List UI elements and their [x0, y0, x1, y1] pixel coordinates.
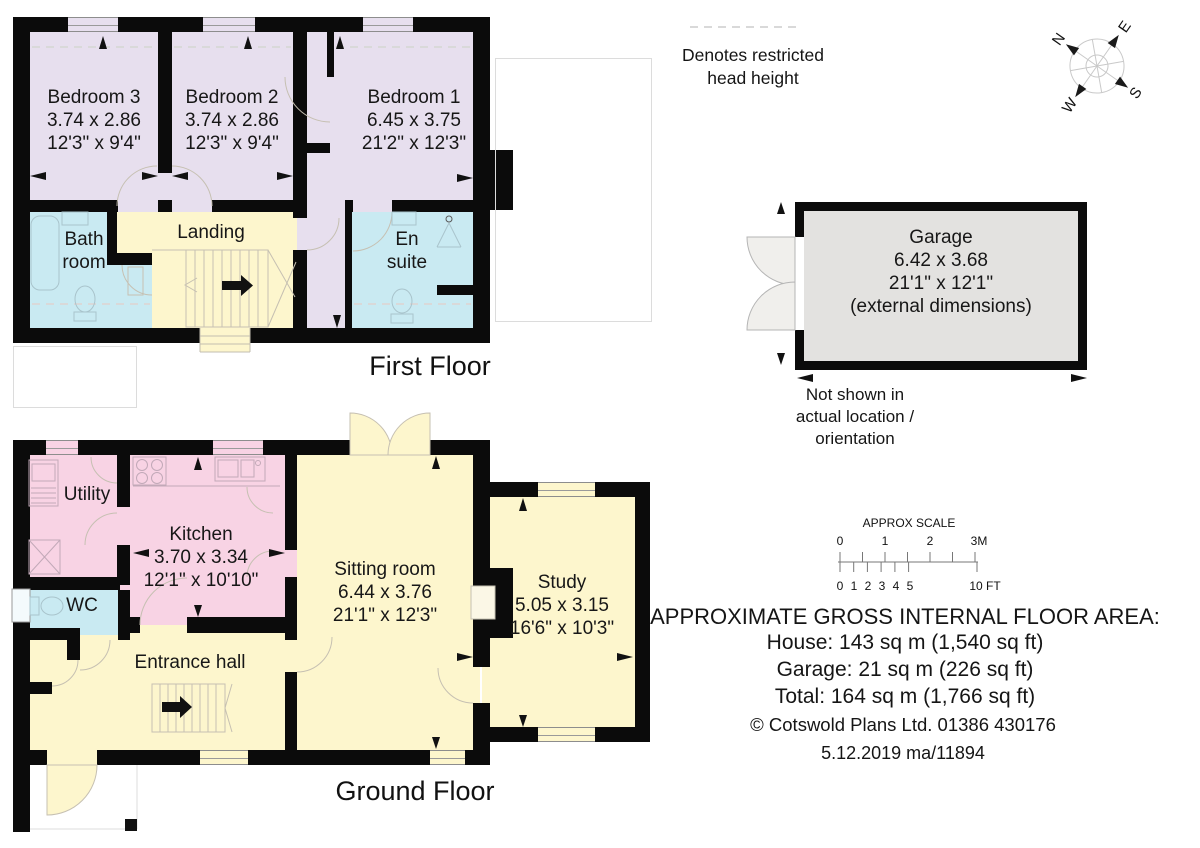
- room-fill-utility: [22, 448, 130, 585]
- window: [213, 440, 263, 455]
- window: [538, 482, 595, 497]
- door-gap: [350, 440, 430, 455]
- sitting-room-name: Sitting room: [333, 558, 437, 581]
- room-label-bedroom3: Bedroom 3 3.74 x 2.86 12'3" x 9'4": [47, 86, 141, 155]
- compass-rose: N E S W: [1020, 0, 1173, 143]
- wall: [67, 640, 80, 660]
- svg-text:10 FT: 10 FT: [969, 579, 1001, 593]
- wall: [187, 617, 297, 633]
- bedroom2-name: Bedroom 2: [185, 86, 279, 109]
- room-label-study: Study 5.05 x 3.15 16'6" x 10'3": [510, 571, 614, 640]
- room-label-landing: Landing: [177, 221, 245, 244]
- compass-s: S: [1126, 84, 1146, 102]
- floor-plan-page: N E S W APPROX SCALE 0 1 2: [0, 0, 1200, 848]
- garage-note: (external dimensions): [850, 295, 1032, 318]
- scale-meter-labels: 0 1 2 3M: [837, 534, 988, 548]
- wall: [250, 328, 490, 343]
- wall: [437, 285, 473, 295]
- bedroom3-name: Bedroom 3: [47, 86, 141, 109]
- kitchen-imperial: 12'1" x 10'10": [144, 569, 259, 592]
- kitchen-metric: 3.70 x 3.34: [144, 546, 259, 569]
- wall: [158, 200, 172, 212]
- wall: [392, 200, 473, 212]
- window: [430, 750, 465, 765]
- bedroom2-metric: 3.74 x 2.86: [185, 109, 279, 132]
- svg-text:0: 0: [837, 534, 844, 548]
- wall: [473, 17, 490, 343]
- window: [46, 440, 78, 455]
- room-fill-bathroom: [107, 260, 152, 333]
- bedroom1-metric: 6.45 x 3.75: [362, 109, 466, 132]
- bedroom1-name: Bedroom 1: [362, 86, 466, 109]
- wall: [30, 682, 52, 694]
- scale-feet-labels: 0 1 2 3 4 5 10 FT: [837, 579, 1002, 593]
- wall: [117, 455, 130, 507]
- svg-text:2: 2: [865, 579, 872, 593]
- wall: [293, 32, 307, 218]
- wall: [13, 328, 200, 343]
- wall: [30, 577, 120, 590]
- scale-bar: APPROX SCALE 0 1 2 3M 0 1 2 3: [837, 516, 1002, 593]
- ensuite-line1: En: [387, 228, 427, 251]
- legend-restricted-head-height: Denotes restricted head height: [682, 44, 824, 90]
- wall: [212, 200, 293, 212]
- bathroom-line2: room: [62, 251, 105, 274]
- garage-door-leaf: [747, 282, 795, 330]
- room-label-wc: WC: [66, 594, 98, 617]
- room-label-garage: Garage 6.42 x 3.68 21'1" x 12'1" (extern…: [850, 226, 1032, 318]
- wall: [158, 32, 172, 173]
- wall: [285, 672, 297, 750]
- study-metric: 5.05 x 3.15: [510, 594, 614, 617]
- window: [203, 17, 255, 32]
- wall: [293, 250, 307, 328]
- garage-caption-line3: orientation: [796, 428, 914, 450]
- room-label-kitchen: Kitchen 3.70 x 3.34 12'1" x 10'10": [144, 523, 259, 592]
- bedroom3-imperial: 12'3" x 9'4": [47, 132, 141, 155]
- wall: [285, 455, 297, 550]
- first-floor-title: First Floor: [369, 351, 491, 382]
- compass-n: N: [1049, 30, 1069, 49]
- wall: [13, 750, 47, 765]
- wall: [13, 765, 30, 832]
- areas-house: House: 143 sq m (1,540 sq ft): [767, 631, 1044, 655]
- date-reference: 5.12.2019 ma/11894: [821, 743, 985, 764]
- areas-total: Total: 164 sq m (1,766 sq ft): [775, 685, 1035, 709]
- room-fill-landing: [152, 258, 297, 333]
- svg-text:3: 3: [879, 579, 886, 593]
- wall: [130, 617, 140, 633]
- garage-metric: 6.42 x 3.68: [850, 249, 1032, 272]
- wall: [345, 200, 353, 212]
- copyright-line: © Cotswold Plans Ltd. 01386 430176: [750, 714, 1056, 736]
- wc-name: WC: [66, 594, 98, 617]
- ensuite-line2: suite: [387, 251, 427, 274]
- scale-title: APPROX SCALE: [863, 516, 956, 530]
- legend-line1: Denotes restricted: [682, 44, 824, 67]
- wall: [473, 440, 490, 667]
- room-label-bedroom1: Bedroom 1 6.45 x 3.75 21'2" x 12'3": [362, 86, 466, 155]
- room-label-bathroom: Bath room: [62, 228, 105, 274]
- entrance-hall-name: Entrance hall: [135, 651, 246, 674]
- garage-name: Garage: [850, 226, 1032, 249]
- wall: [13, 17, 30, 343]
- room-label-sitting-room: Sitting room 6.44 x 3.76 21'1" x 12'3": [333, 558, 437, 627]
- svg-text:1: 1: [851, 579, 858, 593]
- door-gap: [47, 750, 97, 765]
- wall: [107, 253, 152, 265]
- wall: [473, 703, 490, 765]
- garage-caption: Not shown in actual location / orientati…: [796, 384, 914, 450]
- study-imperial: 16'6" x 10'3": [510, 617, 614, 640]
- wall: [30, 628, 80, 640]
- ground-floor-title: Ground Floor: [335, 776, 494, 807]
- wall: [118, 590, 130, 640]
- wall: [490, 150, 513, 210]
- study-name: Study: [510, 571, 614, 594]
- kitchen-name: Kitchen: [144, 523, 259, 546]
- legend-line2: head height: [682, 67, 824, 90]
- bedroom1-imperial: 21'2" x 12'3": [362, 132, 466, 155]
- utility-name: Utility: [64, 483, 110, 506]
- svg-text:5: 5: [907, 579, 914, 593]
- wall: [300, 143, 330, 153]
- svg-text:4: 4: [893, 579, 900, 593]
- wall: [635, 482, 650, 742]
- garage-door-leaf: [747, 237, 795, 285]
- room-label-entrance-hall: Entrance hall: [135, 651, 246, 674]
- svg-text:2: 2: [927, 534, 934, 548]
- compass-e: E: [1115, 18, 1135, 36]
- bathroom-line1: Bath: [62, 228, 105, 251]
- porch-post: [125, 819, 137, 831]
- garage-caption-line2: actual location /: [796, 406, 914, 428]
- garage-imperial: 21'1" x 12'1": [850, 272, 1032, 295]
- compass-w: W: [1059, 94, 1082, 116]
- wall: [345, 203, 352, 328]
- wall: [97, 750, 200, 765]
- sitting-room-imperial: 21'1" x 12'3": [333, 604, 437, 627]
- bedroom3-metric: 3.74 x 2.86: [47, 109, 141, 132]
- window: [200, 750, 248, 765]
- room-label-utility: Utility: [64, 483, 110, 506]
- wall: [248, 750, 430, 765]
- window: [363, 17, 413, 32]
- front-door-arc: [47, 765, 97, 815]
- garage-caption-line1: Not shown in: [796, 384, 914, 406]
- svg-text:3M: 3M: [971, 534, 988, 548]
- compass-needles: [1044, 13, 1150, 119]
- svg-text:0: 0: [837, 579, 844, 593]
- landing-name: Landing: [177, 221, 245, 244]
- window: [68, 17, 118, 32]
- window: [538, 727, 595, 742]
- wall: [30, 200, 118, 212]
- room-label-ensuite: En suite: [387, 228, 427, 274]
- sitting-room-metric: 6.44 x 3.76: [333, 581, 437, 604]
- wall: [13, 440, 30, 765]
- wall: [327, 32, 334, 77]
- svg-text:1: 1: [882, 534, 889, 548]
- areas-title: APPROXIMATE GROSS INTERNAL FLOOR AREA:: [650, 604, 1160, 630]
- wall: [285, 628, 297, 640]
- areas-garage: Garage: 21 sq m (226 sq ft): [777, 658, 1034, 682]
- bedroom2-imperial: 12'3" x 9'4": [185, 132, 279, 155]
- room-label-bedroom2: Bedroom 2 3.74 x 2.86 12'3" x 9'4": [185, 86, 279, 155]
